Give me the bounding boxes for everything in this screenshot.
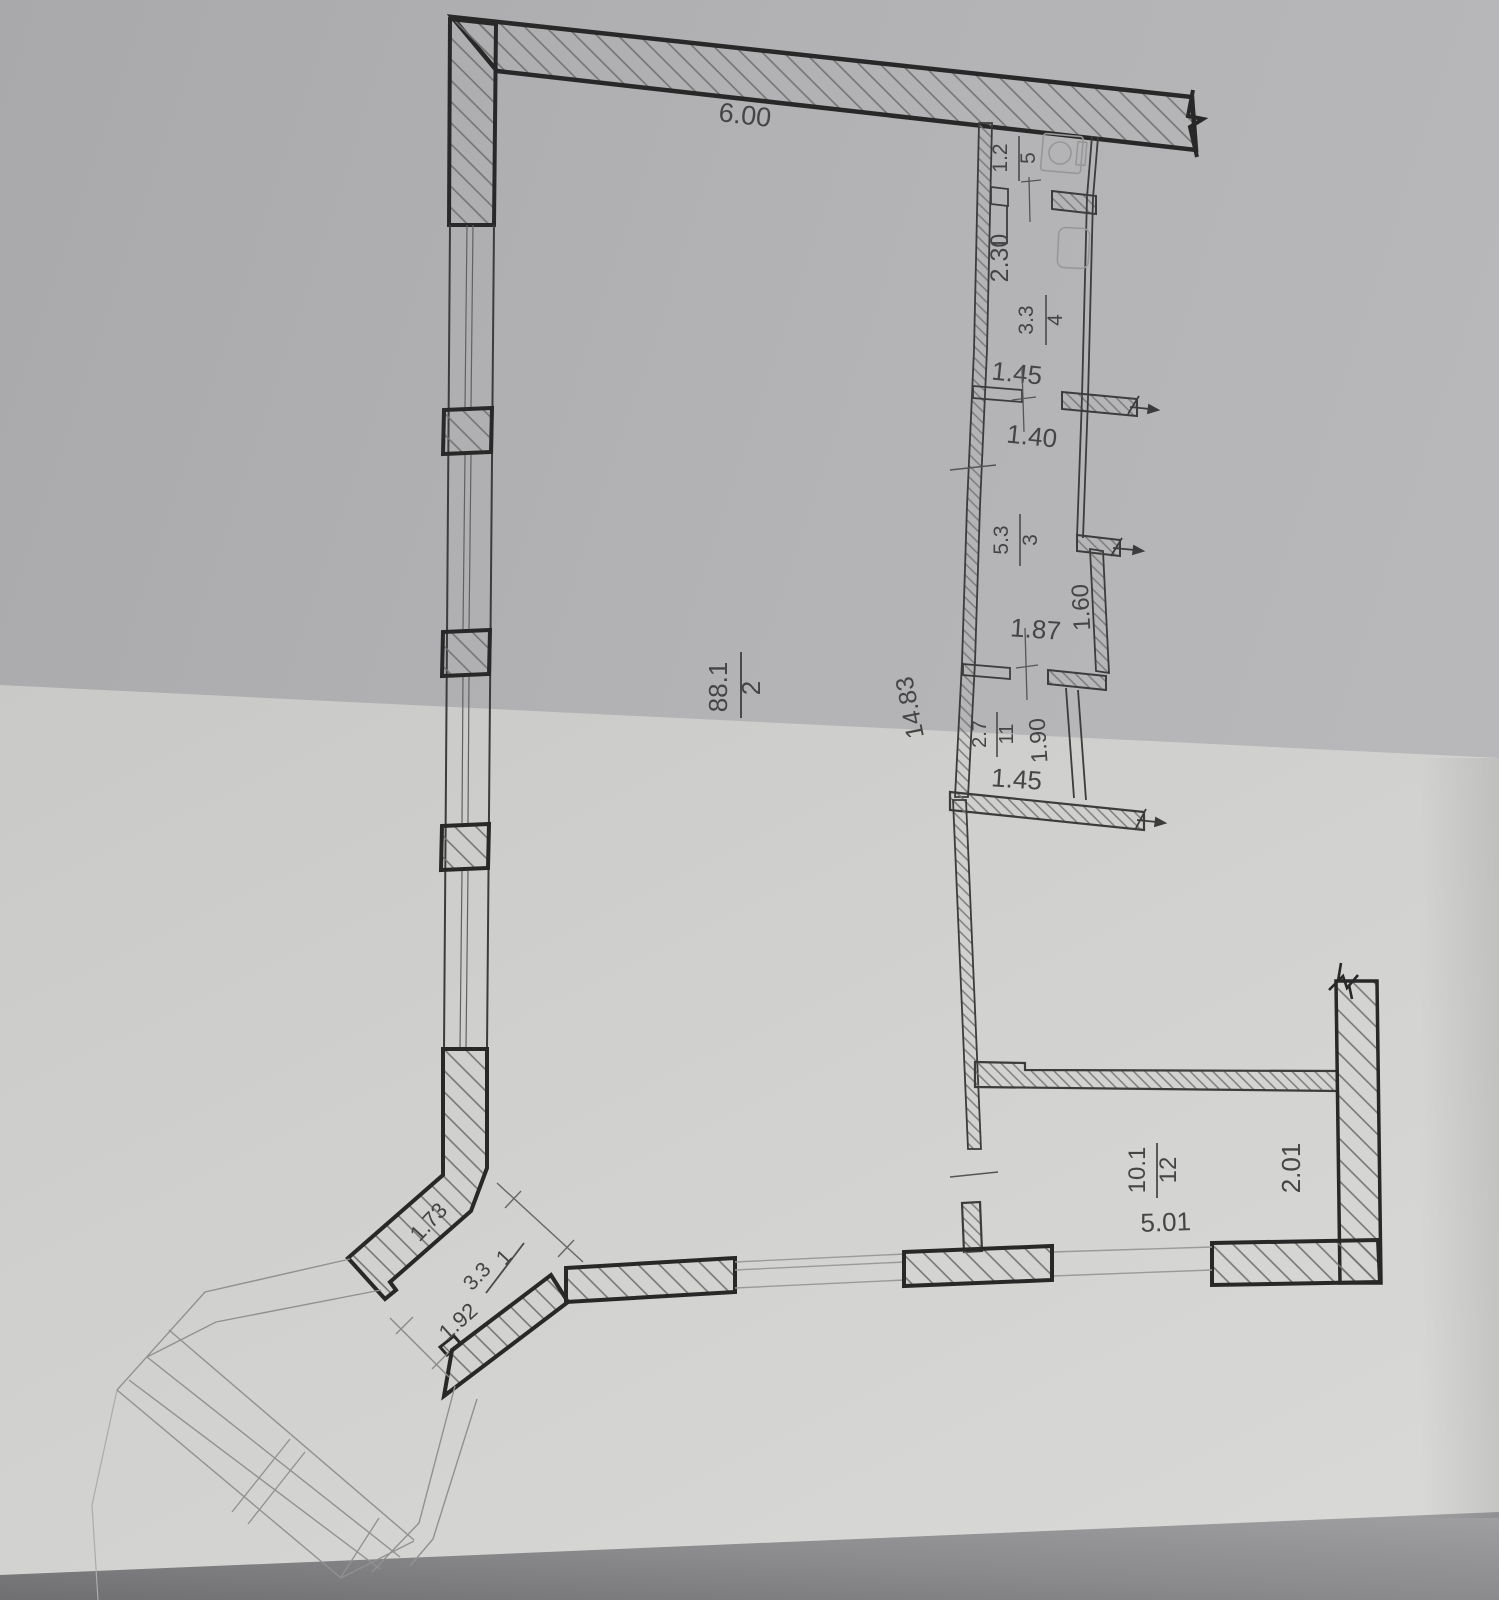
svg-text:4: 4 — [1044, 314, 1067, 326]
svg-text:1.90: 1.90 — [1023, 717, 1052, 763]
svg-text:5.01: 5.01 — [1140, 1206, 1192, 1238]
svg-text:1.45: 1.45 — [990, 762, 1043, 795]
svg-text:5.3: 5.3 — [990, 525, 1013, 554]
svg-text:10.1: 10.1 — [1124, 1147, 1151, 1194]
svg-text:88.1: 88.1 — [703, 662, 733, 713]
svg-text:2.01: 2.01 — [1276, 1143, 1306, 1194]
svg-text:2: 2 — [736, 681, 766, 695]
svg-text:11: 11 — [996, 724, 1018, 745]
svg-text:3.3: 3.3 — [1015, 305, 1038, 334]
svg-text:3: 3 — [1019, 534, 1042, 546]
svg-text:1.87: 1.87 — [1009, 612, 1062, 645]
svg-text:5: 5 — [1017, 152, 1040, 164]
svg-text:1.60: 1.60 — [1067, 583, 1096, 631]
svg-text:1.45: 1.45 — [990, 355, 1043, 390]
svg-text:2.30: 2.30 — [986, 234, 1014, 283]
svg-text:1.2: 1.2 — [989, 143, 1012, 172]
svg-text:12: 12 — [1155, 1157, 1182, 1184]
svg-text:2.7: 2.7 — [969, 720, 991, 748]
svg-text:6.00: 6.00 — [717, 97, 773, 133]
svg-text:1.40: 1.40 — [1005, 418, 1058, 453]
